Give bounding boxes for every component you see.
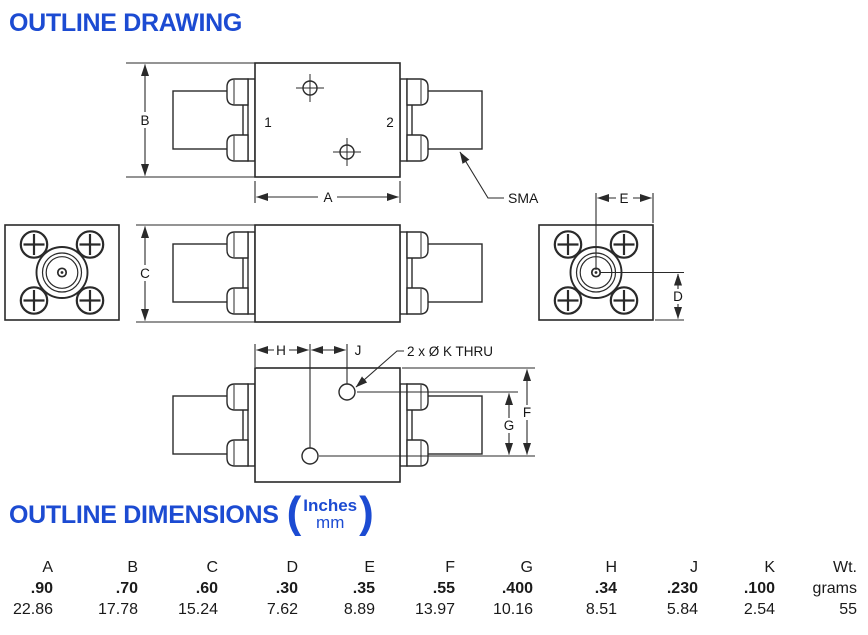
dim-g-label: G	[504, 418, 515, 433]
table-cell-mm: 15.24	[149, 599, 229, 620]
table-header-cell: K	[709, 557, 786, 578]
table-cell-inches: .100	[709, 578, 786, 599]
table-cell-inches: .55	[386, 578, 466, 599]
dim-h-label: H	[276, 343, 286, 358]
table-inches-row: .90 .70 .60 .30 .35 .55 .400 .34 .230 .1…	[0, 578, 868, 599]
port-1-label: 1	[264, 115, 272, 130]
table-cell-mm: 22.86	[0, 599, 64, 620]
table-cell-inches: .70	[64, 578, 149, 599]
table-cell-inches: grams	[786, 578, 868, 599]
table-cell-inches: .230	[628, 578, 709, 599]
top-view: 1 2	[173, 63, 482, 177]
dim-b-label: B	[140, 113, 149, 128]
dim-a-label: A	[323, 190, 332, 205]
table-cell-mm: 17.78	[64, 599, 149, 620]
table-cell-inches: .35	[309, 578, 386, 599]
table-cell-mm: 10.16	[466, 599, 544, 620]
table-cell-mm: 8.89	[309, 599, 386, 620]
left-end-view	[5, 225, 119, 320]
dim-d-label: D	[673, 289, 683, 304]
sma-callout: SMA	[460, 152, 539, 206]
units-mm: mm	[316, 514, 344, 531]
table-header-cell: G	[466, 557, 544, 578]
table-mm-row: 22.86 17.78 15.24 7.62 8.89 13.97 10.16 …	[0, 599, 868, 620]
table-cell-mm: 2.54	[709, 599, 786, 620]
table-cell-inches: .400	[466, 578, 544, 599]
close-paren: )	[359, 495, 374, 531]
bottom-view	[173, 368, 482, 482]
table-header-cell: Wt.	[786, 557, 868, 578]
outline-drawing-figure: 1 2 B A SMA	[0, 0, 868, 500]
units-inches: Inches	[303, 497, 357, 514]
table-header-cell: E	[309, 557, 386, 578]
datasheet-page: OUTLINE DRAWING	[0, 0, 868, 635]
table-cell-mm: 5.84	[628, 599, 709, 620]
table-cell-inches: .60	[149, 578, 229, 599]
dim-j-label: J	[355, 343, 362, 358]
dim-a: A	[255, 181, 400, 205]
table-cell-mm: 8.51	[544, 599, 628, 620]
table-cell-mm: 7.62	[229, 599, 309, 620]
dimensions-table: A B C D E F G H J K Wt. .90 .70 .60 .30 …	[0, 557, 868, 620]
table-cell-inches: .34	[544, 578, 628, 599]
table-cell-mm: 13.97	[386, 599, 466, 620]
dim-c-label: C	[140, 266, 150, 281]
table-header-cell: B	[64, 557, 149, 578]
port-2-label: 2	[386, 115, 394, 130]
open-paren: (	[287, 495, 302, 531]
table-header-cell: D	[229, 557, 309, 578]
outline-dimensions-heading: OUTLINE DIMENSIONS ( Inches mm )	[9, 497, 374, 533]
table-cell-inches: .30	[229, 578, 309, 599]
sma-label: SMA	[508, 190, 539, 206]
dimensions-title: OUTLINE DIMENSIONS	[9, 501, 279, 530]
hole-note-label: 2 x Ø K THRU	[407, 344, 493, 359]
table-header-cell: J	[628, 557, 709, 578]
table-header-cell: C	[149, 557, 229, 578]
dim-f-label: F	[523, 405, 531, 420]
table-cell-mm: 55	[786, 599, 868, 620]
table-cell-inches: .90	[0, 578, 64, 599]
table-header-cell: H	[544, 557, 628, 578]
units-stack: Inches mm	[301, 497, 359, 532]
dim-e-label: E	[619, 191, 628, 206]
table-header-cell: F	[386, 557, 466, 578]
table-header-cell: A	[0, 557, 64, 578]
table-header-row: A B C D E F G H J K Wt.	[0, 557, 868, 578]
side-view	[173, 225, 482, 322]
